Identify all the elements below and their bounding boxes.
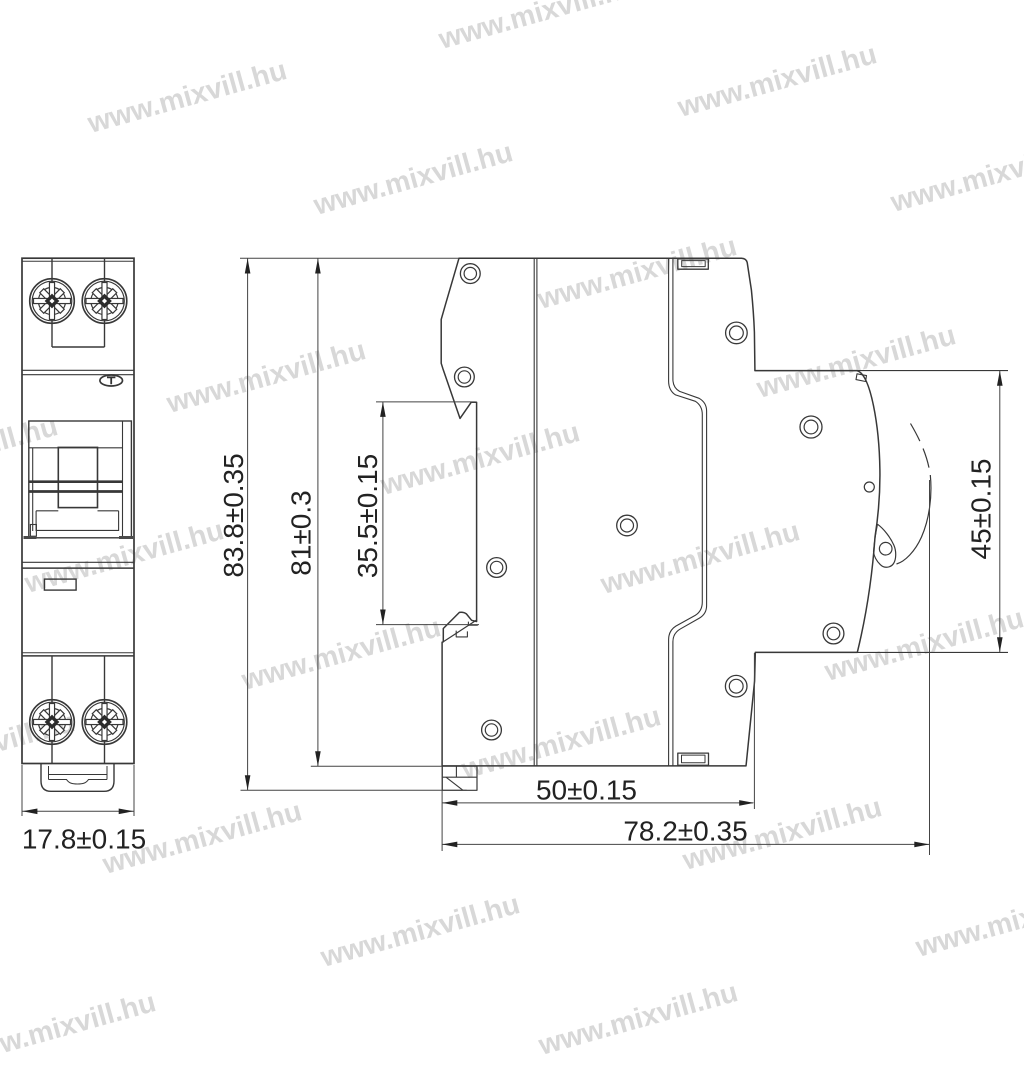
svg-text:78.2±0.35: 78.2±0.35 [623,816,747,847]
svg-text:www.mixvill.hu: www.mixvill.hu [0,986,159,1072]
svg-text:www.mixvill.hu: www.mixvill.hu [911,878,1024,964]
svg-text:www.mixvill.hu: www.mixvill.hu [309,136,516,222]
svg-text:83.8±0.35: 83.8±0.35 [218,453,249,577]
svg-text:www.mixvill.hu: www.mixvill.hu [162,334,369,420]
svg-text:www.mixvill.hu: www.mixvill.hu [316,888,523,974]
svg-text:www.mixvill.hu: www.mixvill.hu [752,319,959,405]
svg-text:www.mixvill.hu: www.mixvill.hu [434,0,641,56]
svg-text:www.mixvill.hu: www.mixvill.hu [820,602,1024,688]
svg-text:50±0.15: 50±0.15 [536,775,637,806]
svg-text:www.mixvill.hu: www.mixvill.hu [83,54,290,140]
svg-text:www.mixvill.hu: www.mixvill.hu [534,976,741,1062]
svg-text:www.mixvill.hu: www.mixvill.hu [596,515,803,601]
svg-text:www.mixvill.hu: www.mixvill.hu [20,514,227,600]
svg-text:www.mixvill.hu: www.mixvill.hu [457,700,664,786]
svg-text:www.mixvill.hu: www.mixvill.hu [886,133,1024,219]
svg-text:www.mixvill.hu: www.mixvill.hu [673,38,880,124]
svg-text:www.mixvill.hu: www.mixvill.hu [0,410,61,496]
svg-text:81±0.3: 81±0.3 [286,490,317,575]
svg-text:17.8±0.15: 17.8±0.15 [22,824,146,855]
svg-text:www.mixvill.hu: www.mixvill.hu [376,416,583,502]
svg-text:45±0.15: 45±0.15 [966,458,997,559]
svg-text:www.mixvill.hu: www.mixvill.hu [237,611,444,697]
svg-text:35.5±0.15: 35.5±0.15 [352,454,383,578]
svg-text:www.mixvill.hu: www.mixvill.hu [533,230,740,316]
